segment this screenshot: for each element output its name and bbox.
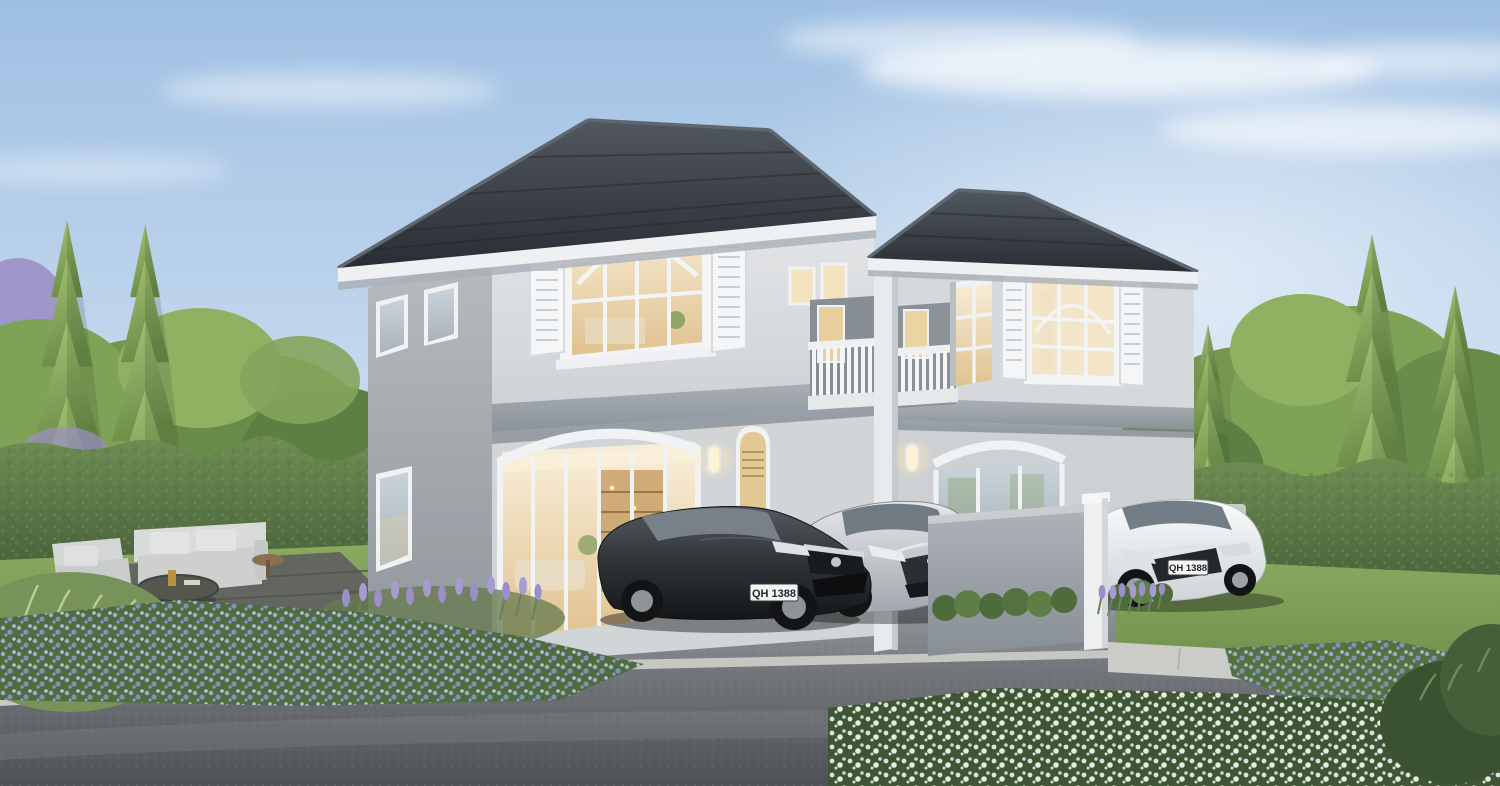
wall-sconce — [697, 443, 731, 477]
license-plate: QH 1388 — [750, 584, 798, 601]
exterior-render-image: QH 1388 QH 1388 — [0, 0, 1500, 786]
license-plate-text: QH 1388 — [752, 588, 796, 600]
balcony — [808, 296, 876, 410]
license-plate-text: QH 1388 — [1169, 563, 1207, 574]
balcony-railing — [814, 344, 870, 398]
balcony — [898, 302, 958, 408]
brand-emblem — [831, 557, 841, 567]
wall-sconce — [895, 441, 929, 475]
corner-window — [950, 278, 992, 386]
privacy-fence — [928, 504, 1086, 656]
table-decor-vase — [168, 570, 176, 586]
fence-pillar — [1082, 492, 1110, 650]
interior-plant — [578, 535, 598, 555]
interior-curtain — [1040, 290, 1054, 370]
license-plate: QH 1388 — [1168, 560, 1208, 575]
render-canvas: QH 1388 QH 1388 — [0, 0, 1500, 786]
